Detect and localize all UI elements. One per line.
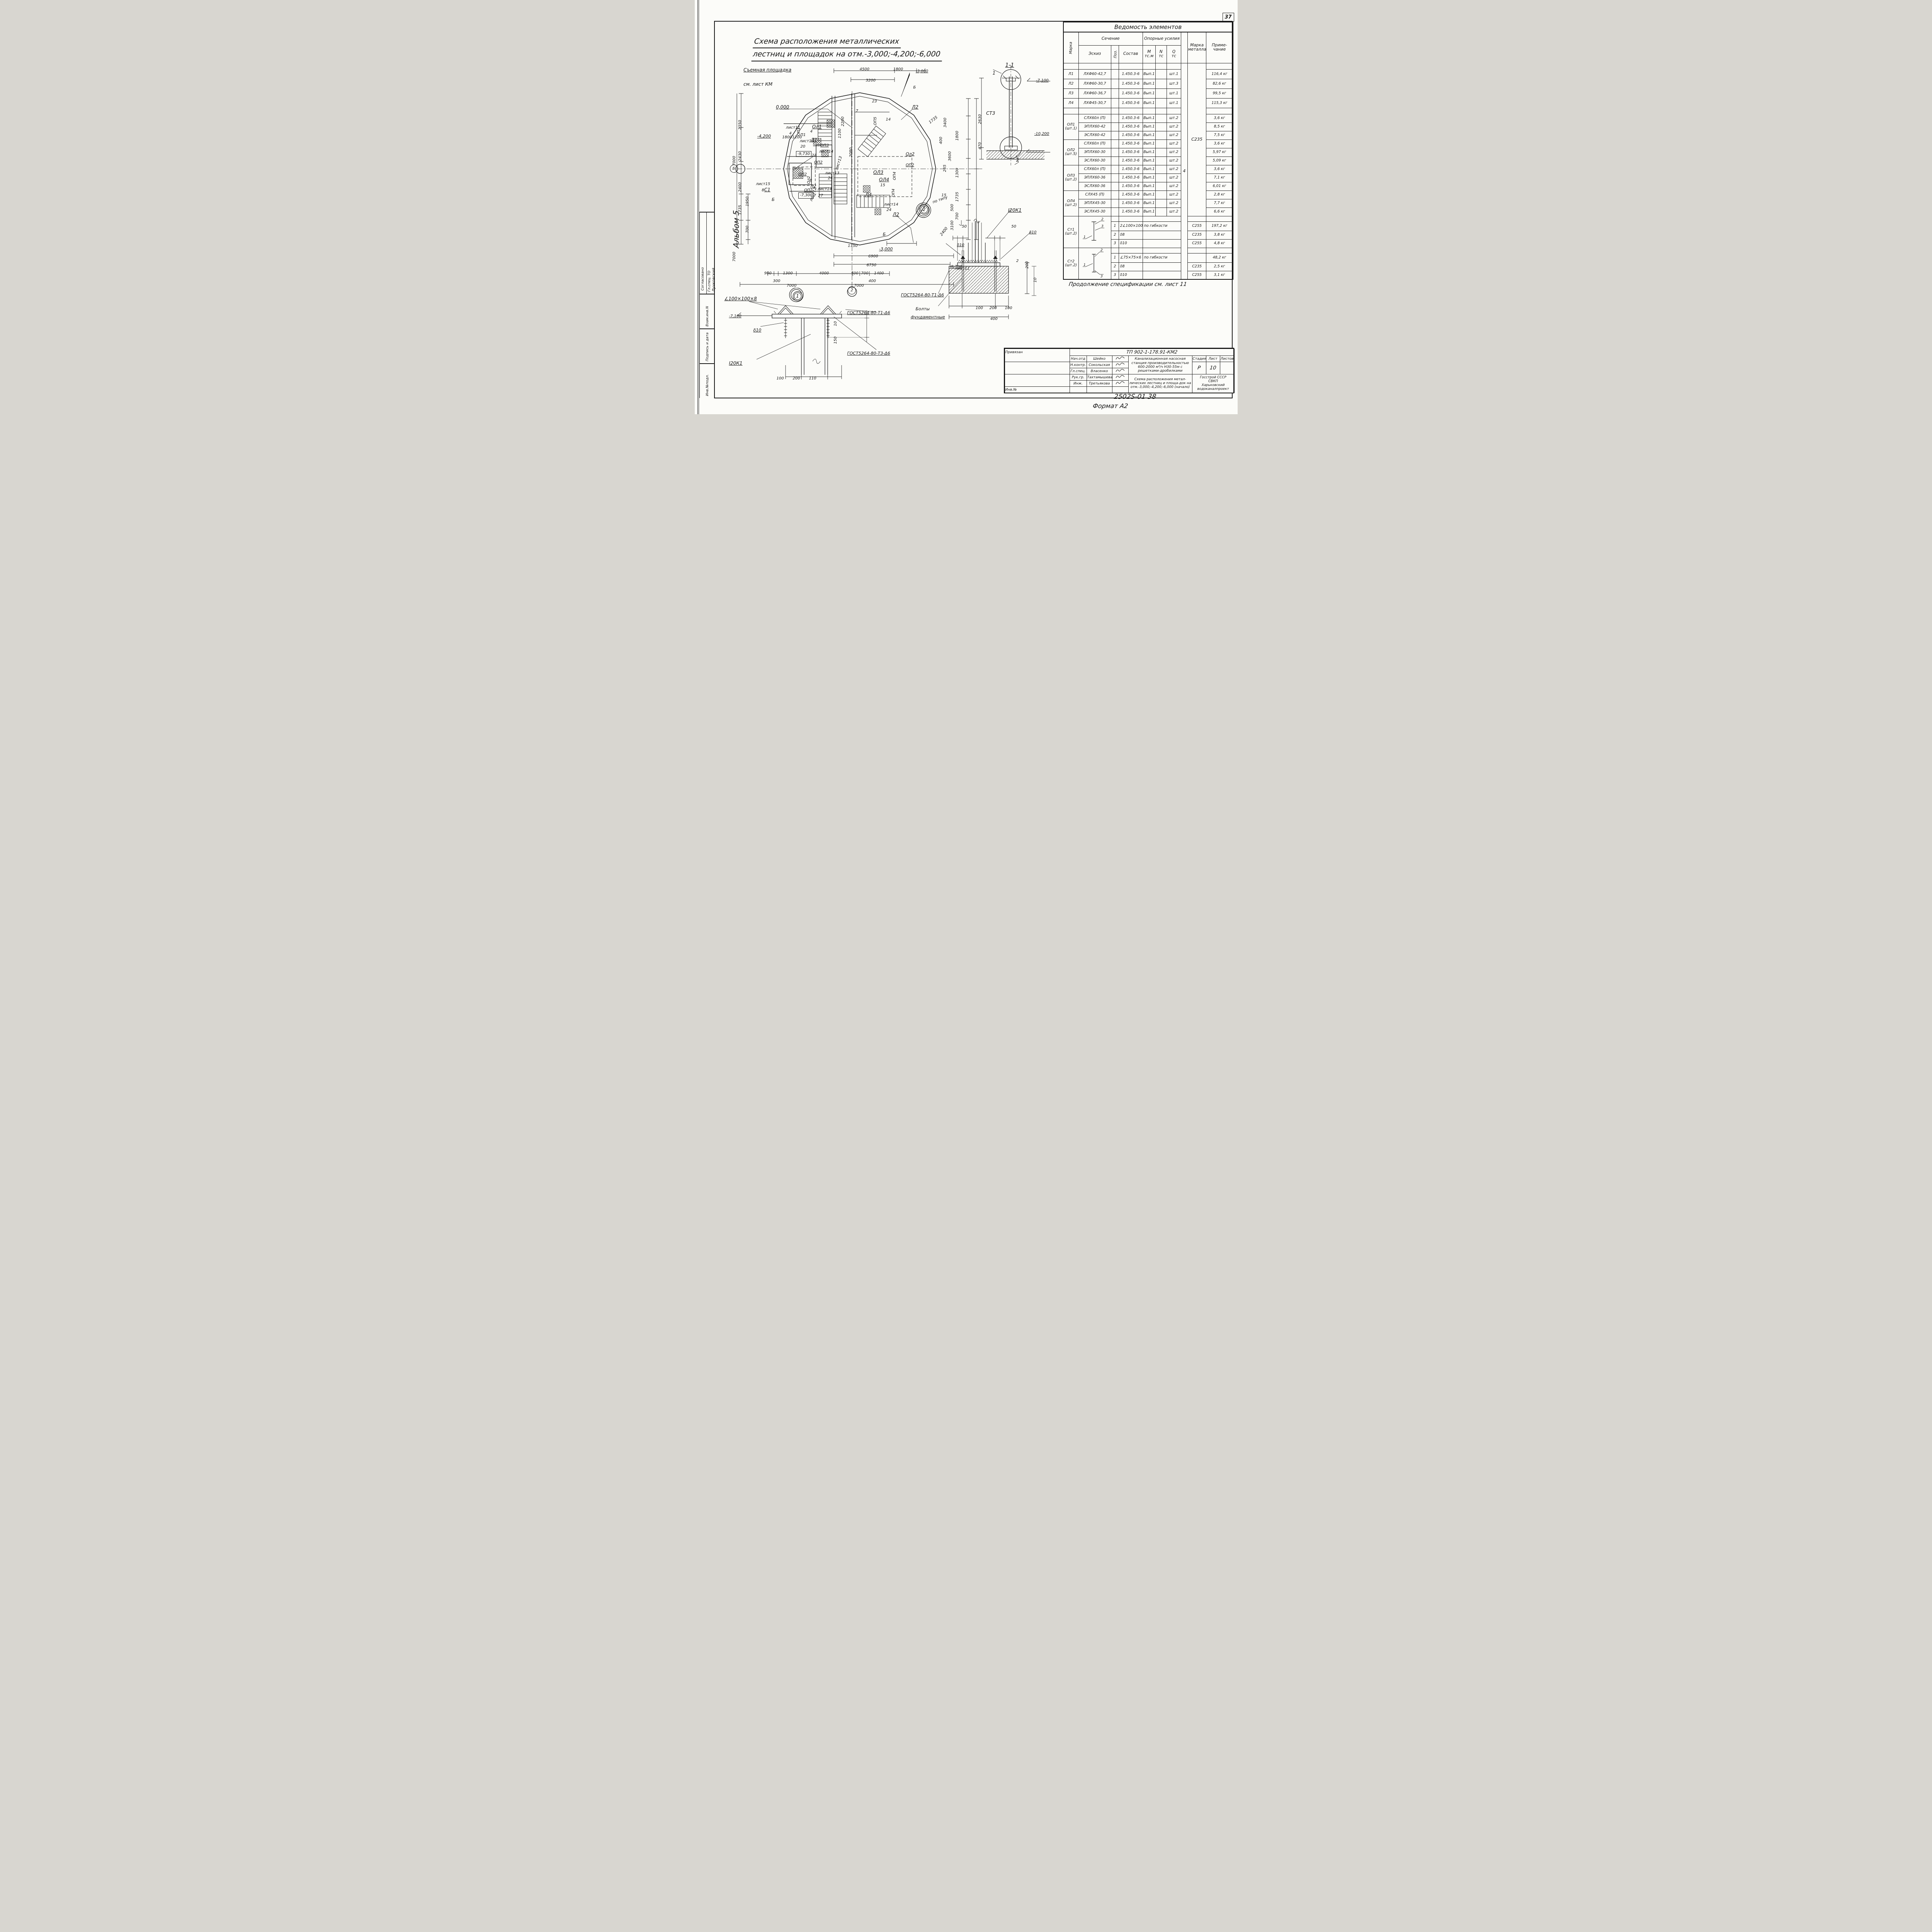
plan-label: 1800 xyxy=(955,131,960,140)
spec-cell: шт.1 xyxy=(1167,69,1181,79)
spec-cell: Л2 xyxy=(1063,79,1079,88)
sheet-label: Лист xyxy=(1206,356,1220,362)
plan-label: 7000 xyxy=(854,284,864,288)
detail-1-label: ГОСТ5264-80-Т1-Δ6 xyxy=(847,311,890,316)
spec-cell: ЭСЛХ60-42 xyxy=(1078,131,1111,139)
spec-cell: ЛХФ45-30,7 xyxy=(1078,98,1111,108)
spec-row: ОЛ1 (шт.1)СЛХ60л (П)1.450.3-6Вып.1шт.23,… xyxy=(1063,114,1233,122)
spec-cell xyxy=(1143,63,1155,69)
spec-cell xyxy=(1155,114,1167,122)
signature-icon xyxy=(1115,374,1125,379)
plan-label: 1800 xyxy=(782,135,792,140)
spec-cell xyxy=(1155,122,1167,131)
spec-cell: ЭПЛХ60-42 xyxy=(1078,122,1111,131)
spec-cell xyxy=(1111,63,1119,69)
st2-sketch-icon: 231 xyxy=(1081,248,1108,278)
spec-cell xyxy=(1111,139,1119,148)
spec-cell xyxy=(1155,131,1167,139)
plan-label: 1735 xyxy=(955,192,960,202)
spec-row: Л4ЛХФ45-30,71.450.3-6Вып.1шт.1115,3 кг xyxy=(1063,98,1233,108)
staff-sig-4 xyxy=(1112,381,1128,387)
spec-cell: шт.2 xyxy=(1167,182,1181,190)
spec-table: Марка Сечение Опорные усилия Группа конс… xyxy=(1063,32,1233,280)
spec-cell: Вып.1 xyxy=(1143,88,1155,98)
plan-label: -4,200 xyxy=(757,134,771,139)
project-name: Канализационная насосная станция произво… xyxy=(1128,356,1192,374)
section-label: СТ3 xyxy=(986,111,995,116)
spec-cell xyxy=(1111,165,1119,173)
detail-2-label: 2 xyxy=(1016,259,1019,264)
spec-cell: ЭСЛХ60-30 xyxy=(1078,156,1111,165)
plan-label: 2080 xyxy=(849,148,854,157)
spec-cell: 48,2 кг xyxy=(1206,253,1233,262)
spec-cell xyxy=(1155,165,1167,173)
spec-cell: С255 xyxy=(1187,239,1206,248)
spec-cell: СЛХ45 (П) xyxy=(1078,190,1111,199)
spec-cell: шт.3 xyxy=(1167,79,1181,88)
spec-row: Л1ЛХФ60-42,71.450.3-6Вып.1шт.1116,4 кг xyxy=(1063,69,1233,79)
spec-cell: шт.2 xyxy=(1167,156,1181,165)
detail-1-geometry xyxy=(714,288,946,400)
spec-cell xyxy=(1111,182,1119,190)
spec-cell: 1.450.3-6 xyxy=(1119,131,1143,139)
spec-cell xyxy=(1155,98,1167,108)
spec-cell xyxy=(1119,248,1143,253)
spec-cell: шт.1 xyxy=(1167,88,1181,98)
sheet-edge-line2 xyxy=(699,0,699,414)
spec-cell xyxy=(1187,216,1206,221)
signature-icon xyxy=(1115,362,1125,367)
sheet-title: Схема расположения метал-лических лестни… xyxy=(1128,374,1192,393)
plan-label: Ол1 xyxy=(812,124,822,130)
section-label: 1 xyxy=(993,71,996,76)
left-bottom-label: Инв.№ xyxy=(1005,387,1070,393)
section-label: -10,200 xyxy=(1034,132,1049,136)
spec-row: ЭПЛХ60-361.450.3-6Вып.1шт.27,1 кг xyxy=(1063,173,1233,182)
spec-cell: Вып.1 xyxy=(1143,165,1155,173)
spec-cell: 116,4 кг xyxy=(1206,69,1233,79)
spec-cell: СЛХ60л (П) xyxy=(1078,139,1111,148)
plan-label: 900 xyxy=(764,271,772,276)
spec-cell: 3,6 кг xyxy=(1206,139,1233,148)
col-eskiz: Эскиз xyxy=(1078,45,1111,63)
org-cell: Госстрой СССР СВКП Харьковский водоканал… xyxy=(1192,374,1234,393)
plan-label: ОП3 xyxy=(820,143,829,148)
col-poz: Поз. xyxy=(1114,50,1117,58)
plan-label: лист14 xyxy=(818,187,832,192)
spec-cell xyxy=(1155,139,1167,148)
section-1-1-geometry xyxy=(969,58,1060,174)
spec-cell xyxy=(1187,248,1206,253)
spec-cell: ЭСЛХ60-36 xyxy=(1078,182,1111,190)
spec-row: Л3ЛХФ60-36,71.450.3-6Вып.1шт.199,5 кг xyxy=(1063,88,1233,98)
spec-cell: 3,1 кг xyxy=(1206,271,1233,279)
spec-cell: 1.450.3-6 xyxy=(1119,148,1143,156)
spec-row: Л2ЛХФ60-30,71.450.3-6Вып.1шт.382,6 кг xyxy=(1063,79,1233,88)
section-label: 470 xyxy=(978,142,983,150)
spec-cell: ОЛ4 (шт.2) xyxy=(1063,190,1079,216)
spec-cell: 3,6 кг xyxy=(1206,114,1233,122)
plan-label: Ол2 xyxy=(906,152,915,157)
spec-cell: 115,3 кг xyxy=(1206,98,1233,108)
spec-cell: δ8 xyxy=(1119,262,1143,271)
spec-cell xyxy=(1063,63,1079,69)
plan-label: 7000 xyxy=(787,284,796,288)
spec-cell: 1.450.3-6 xyxy=(1119,165,1143,173)
spec-cell xyxy=(1187,253,1206,262)
sheet-value: 10 xyxy=(1205,362,1221,374)
spec-cell: 1.450.3-6 xyxy=(1119,182,1143,190)
agreed-label: Согласовано xyxy=(701,267,705,291)
svg-text:2: 2 xyxy=(1101,218,1104,221)
doc-code: 2502S-01 38 xyxy=(1113,393,1156,401)
spec-row: ЭСЛХ60-301.450.3-6Вып.1шт.25,09 кг xyxy=(1063,156,1233,165)
detail-1-label: 100 xyxy=(777,376,784,381)
spec-row: ЭПЛХ60-301.450.3-6Вып.1шт.25,97 кг xyxy=(1063,148,1233,156)
detail-2-label: 2 xyxy=(962,259,964,264)
plan-label: 15 xyxy=(941,193,946,198)
spec-cell xyxy=(1119,216,1143,221)
detail-2-label: 200 xyxy=(1025,261,1030,269)
spec-cell: Вып.1 xyxy=(1143,199,1155,207)
spec-cell xyxy=(1111,216,1119,221)
plan-label: 3600 xyxy=(948,151,952,161)
detail-2-label: -9,730 xyxy=(950,265,962,269)
plan-label: 1750 xyxy=(848,244,857,248)
plan-label: ОЛ4 xyxy=(879,177,889,183)
spec-cell: 99,5 кг xyxy=(1206,88,1233,98)
plan-label: 8 xyxy=(762,188,764,193)
detail-1: 1∠100×100×8-7,100δ10ГОСТ5264-80-Т1-Δ6101… xyxy=(714,288,946,400)
plan-label: 2430 xyxy=(738,151,743,161)
spec-row: Ст1 (шт.2)231 xyxy=(1063,216,1233,221)
spec-cell: 1.450.3-6 xyxy=(1119,190,1143,199)
spec-row: ЭСЛХ60-361.450.3-6Вып.1шт.26,01 кг xyxy=(1063,182,1233,190)
detail-1-label: ∠100×100×8 xyxy=(724,296,757,302)
staff-role-0: Нач.отд xyxy=(1070,356,1087,362)
plan-label: 500 xyxy=(851,271,859,276)
spec-cell xyxy=(1206,248,1233,253)
spec-cell: δ8 xyxy=(1119,231,1143,239)
main-title: Схема расположения металлических лестниц… xyxy=(751,36,944,61)
spec-cell: 7,7 кг xyxy=(1206,199,1233,207)
agreed-role: Гл.спец. ТО xyxy=(707,271,711,292)
staff-role-1: Н.контр. xyxy=(1070,362,1087,368)
spec-cell: 1.450.3-6 xyxy=(1119,98,1143,108)
spec-cell: 2∠100×100×10 xyxy=(1119,221,1143,231)
spec-cell: Вып.1 xyxy=(1143,182,1155,190)
plan-label: 23 xyxy=(811,153,816,158)
spec-cell: ОЛ1 (шт.1) xyxy=(1063,114,1079,139)
spec-cell: 5,97 кг xyxy=(1206,148,1233,156)
plan-label: лист14 xyxy=(799,139,814,144)
spec-cell: ЭПЛХ60-30 xyxy=(1078,148,1111,156)
spec-cell: шт.2 xyxy=(1167,114,1181,122)
spec-cell xyxy=(1143,262,1181,271)
spec-cell xyxy=(1111,79,1119,88)
plan-label: 700 xyxy=(861,271,868,276)
spec-cell xyxy=(1155,182,1167,190)
spec-cell: по гибкости xyxy=(1143,253,1181,262)
plan-label: 400 xyxy=(939,137,944,144)
detail-2-label: δ10 xyxy=(1029,230,1037,235)
detail-1-label: I20К1 xyxy=(729,361,743,366)
detail-2-label: 50 xyxy=(962,224,967,229)
plan-label: 7 xyxy=(814,194,816,198)
spec-cell xyxy=(1111,190,1119,199)
title-block-table: Привязан ТП 902-1-178.91-КМ2 Нач.отдШейк… xyxy=(1005,349,1235,393)
spec-cell: 1.450.3-6 xyxy=(1119,139,1143,148)
spec-cell: Л1 xyxy=(1063,69,1079,79)
spec-cell: Вып.1 xyxy=(1143,156,1155,165)
spec-cell: 2,5 кг xyxy=(1206,262,1233,271)
podpis-label: Подпись и дата xyxy=(706,332,709,361)
sheets-label: Листов xyxy=(1220,356,1234,362)
spec-cell xyxy=(1155,173,1167,182)
spec-cell: 3,8 кг xyxy=(1206,231,1233,239)
spec-cell xyxy=(1111,88,1119,98)
spec-cell: шт.2 xyxy=(1167,165,1181,173)
spec-cell: шт.2 xyxy=(1167,131,1181,139)
spec-cell: Вып.1 xyxy=(1143,173,1155,182)
spec-cell: С235 xyxy=(1187,262,1206,271)
svg-text:1: 1 xyxy=(1083,263,1086,267)
staff-name-2: Власенко xyxy=(1087,368,1112,374)
spec-cell xyxy=(1155,156,1167,165)
detail-2-label: 400 xyxy=(990,317,998,321)
sheet-edge-line xyxy=(697,0,698,414)
spec-cell: Вып.1 xyxy=(1143,69,1155,79)
spec-cell: Вып.1 xyxy=(1143,139,1155,148)
spec-cell xyxy=(1111,148,1119,156)
plan-label: Л4 xyxy=(865,192,872,198)
left-top-label: Привязан xyxy=(1005,349,1070,356)
spec-cell: 1 xyxy=(1111,253,1119,262)
col-prim2: чание xyxy=(1213,47,1226,52)
col-sostav: Состав xyxy=(1119,45,1143,63)
plan-label: 7 xyxy=(856,109,858,114)
spec-cell: Вып.1 xyxy=(1143,79,1155,88)
detail-1-label: 1 xyxy=(794,293,801,300)
spec-cell: 1.450.3-6 xyxy=(1119,156,1143,165)
plan-label: -9,730 xyxy=(796,151,811,157)
spec-cell: шт.2 xyxy=(1167,139,1181,148)
svg-text:1: 1 xyxy=(1083,235,1086,239)
spec-cell xyxy=(1143,216,1181,221)
title-block: Привязан ТП 902-1-178.91-КМ2 Нач.отдШейк… xyxy=(1004,348,1234,393)
staff-sig-3 xyxy=(1112,374,1128,381)
spec-cell: 82,6 кг xyxy=(1206,79,1233,88)
col-metall2: металла xyxy=(1188,47,1206,52)
plan-label: ОП2 xyxy=(798,172,807,177)
col-oporn: Опорные усилия xyxy=(1143,32,1181,45)
main-title-line1: Схема расположения металлических xyxy=(753,36,902,48)
spec-cell: ЭСЛХ45-30 xyxy=(1078,207,1111,216)
spec-row: ЭСЛХ60-421.450.3-6Вып.1шт.27,5 кг xyxy=(1063,131,1233,139)
spec-cell: С235 xyxy=(1187,63,1206,216)
spec-cell: 1.450.3-6 xyxy=(1119,79,1143,88)
spec-cell xyxy=(1119,63,1143,69)
plan-label: 24 xyxy=(828,176,833,181)
spec-cell xyxy=(1143,231,1181,239)
detail-2-label: 200 xyxy=(990,306,997,311)
spec-cell: Ст1 (шт.2) xyxy=(1063,216,1079,248)
plan-label: 15 xyxy=(880,183,885,188)
stair-l2-upper xyxy=(858,126,886,157)
detail-2-label: δ10 xyxy=(957,243,964,248)
plan-label: 7000 xyxy=(732,252,737,262)
section-label: 2 xyxy=(1016,158,1019,163)
staff-name-3: Тахтамышева xyxy=(1087,374,1112,381)
plan-label: 3200 xyxy=(866,78,876,83)
spec-cell: 3,6 кг xyxy=(1206,165,1233,173)
spec-cell xyxy=(1111,131,1119,139)
doc-number: ТП 902-1-178.91-КМ2 xyxy=(1069,349,1235,356)
staff-name-1: Сокольская xyxy=(1087,362,1112,368)
section-1-1: 1-11-7,100СТ32630-10,2004702 xyxy=(969,58,1060,174)
spec-cell: Ст2 (шт.2) xyxy=(1063,248,1079,279)
spec-cell: 1.450.3-6 xyxy=(1119,114,1143,122)
plan-label: 2400 xyxy=(738,182,743,192)
spec-cell: 1.450.3-6 xyxy=(1119,199,1143,207)
spec-cell: Л4 xyxy=(1063,98,1079,108)
spec-cell: 7,1 кг xyxy=(1206,173,1233,182)
spec-cell: шт.2 xyxy=(1167,148,1181,156)
spec-cell: 3 xyxy=(1111,271,1119,279)
spec-cell xyxy=(1155,79,1167,88)
plan-label: ОП2 xyxy=(906,163,914,168)
staff-sig-1 xyxy=(1112,362,1128,368)
spec-cell: С255 xyxy=(1187,271,1206,279)
spec-cell: шт.2 xyxy=(1167,199,1181,207)
svg-text:3: 3 xyxy=(1100,275,1103,278)
plan-label: Б xyxy=(883,232,886,237)
spec-cell: 197,2 кг xyxy=(1206,221,1233,231)
staff-sig-2 xyxy=(1112,368,1128,374)
spec-cell: шт.2 xyxy=(1167,122,1181,131)
plan-label: Л2 xyxy=(912,105,918,110)
spec-cell: 8,5 кг xyxy=(1206,122,1233,131)
plan-label: лист14 xyxy=(819,150,833,154)
stage-value: Р xyxy=(1191,362,1207,374)
plan-label: 2200 xyxy=(841,116,845,126)
spec-cell: ЛХФ60-42,7 xyxy=(1078,69,1111,79)
spec-cell: 2 xyxy=(1111,231,1119,239)
spec-cell: 4 xyxy=(1181,63,1188,279)
plan-label: Б xyxy=(730,165,738,173)
section-label: -7,100 xyxy=(1036,78,1048,83)
spec-cell xyxy=(1111,98,1119,108)
inv-label: Инв.№подл. xyxy=(706,374,709,396)
spec-cell xyxy=(1143,239,1181,248)
staff-role-3: Рук.гр. xyxy=(1070,374,1087,381)
plan-label: 265 xyxy=(943,164,947,172)
staff-name-0: Шейко xyxy=(1087,356,1112,362)
spec-cell xyxy=(1111,207,1119,216)
spec-cell xyxy=(1063,108,1079,114)
spec-cell: Вып.1 xyxy=(1143,207,1155,216)
plan-label: ОП5 xyxy=(873,117,878,125)
spec-cell xyxy=(1143,248,1181,253)
plan-label: лист13 xyxy=(825,171,839,176)
spec-cell xyxy=(1206,108,1233,114)
plan-label: ОП2 xyxy=(804,188,813,193)
plan-label: 1800 xyxy=(893,67,903,72)
spec-cell xyxy=(1155,69,1167,79)
st1-sketch-icon: 231 xyxy=(1081,216,1108,247)
signature-icon xyxy=(1115,381,1125,385)
plan-label: Л2 xyxy=(893,212,899,218)
plan-label: 2350 xyxy=(738,120,743,130)
spec-cell: 5,09 кг xyxy=(1206,156,1233,165)
col-sechenie: Сечение xyxy=(1078,32,1143,45)
spec-cell: шт.2 xyxy=(1167,173,1181,182)
plan-label: лист15 xyxy=(756,182,770,187)
plan-label: 300 xyxy=(773,279,780,284)
plan-label: 1400 xyxy=(874,271,884,276)
detail-1-label: 200 xyxy=(793,376,800,381)
plan-label: 4000 xyxy=(819,271,829,276)
plan-label: ОЛ3 xyxy=(873,170,883,175)
plan-label: 1300 xyxy=(955,168,960,178)
plan-label: 400 xyxy=(869,279,876,284)
spec-cell: ЭПЛХ45-30 xyxy=(1078,199,1111,207)
spec-cell xyxy=(1206,216,1233,221)
spec-cell xyxy=(1111,114,1119,122)
spec-cell: Вып.1 xyxy=(1143,131,1155,139)
spec-cell: 3 xyxy=(1111,239,1119,248)
spec-table-wrap: Ведомость элементов Марка Сечение Опорны… xyxy=(1063,22,1233,280)
spec-cell: Вып.1 xyxy=(1143,148,1155,156)
spec-cell: ЭПЛХ60-36 xyxy=(1078,173,1111,182)
spec-row: ОЛ4 (шт.2)СЛХ45 (П)1.450.3-6Вып.1шт.22,8… xyxy=(1063,190,1233,199)
spec-cell xyxy=(1078,108,1111,114)
plan-label: -3,000 xyxy=(879,247,893,252)
spec-cell: С235 xyxy=(1187,231,1206,239)
spec-cell: 6,6 кг xyxy=(1206,207,1233,216)
spec-cell: 2 xyxy=(1111,262,1119,271)
spec-cell xyxy=(1206,63,1233,69)
plan-label: 1950 xyxy=(745,197,750,206)
spec-cell: ЛХФ60-36,7 xyxy=(1078,88,1111,98)
plan-label: лист14 xyxy=(884,202,898,207)
svg-text:3: 3 xyxy=(1101,224,1104,228)
spec-cell xyxy=(1111,199,1119,207)
detail-2-label: 10 xyxy=(1033,277,1038,282)
spec-cell: Вып.1 xyxy=(1143,122,1155,131)
spec-cell: 1 xyxy=(1111,221,1119,231)
spec-cell xyxy=(1111,69,1119,79)
col-marka: Марка xyxy=(1069,42,1073,54)
spec-cell: ∠75×75×6 xyxy=(1119,253,1143,262)
plan-label: Б xyxy=(913,85,916,90)
spec-cell xyxy=(1155,88,1167,98)
spec-cell: по гибкости xyxy=(1143,221,1181,231)
stair-l3 xyxy=(834,174,847,204)
plan-label: 23 xyxy=(872,99,877,104)
plan-label: 8 xyxy=(810,179,812,183)
spec-cell: ОЛ3 (шт.2) xyxy=(1063,165,1079,190)
spec-cell: 7,5 кг xyxy=(1206,131,1233,139)
detail-2-label: 100 xyxy=(976,306,983,311)
detail-1-label: 10 xyxy=(833,321,838,326)
plan-label: 24 xyxy=(886,208,891,213)
spec-cell xyxy=(1119,108,1143,114)
spec-row xyxy=(1063,108,1233,114)
spec-cell xyxy=(1167,63,1181,69)
spec-cell: ОЛ2 (шт.5) xyxy=(1063,139,1079,165)
spec-cell xyxy=(1111,108,1119,114)
